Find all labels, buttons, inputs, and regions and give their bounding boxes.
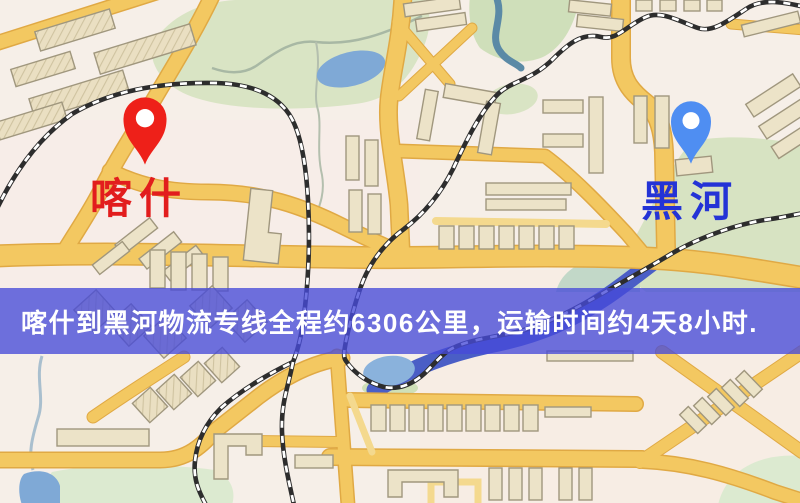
origin-city-label: 喀什	[90, 178, 188, 220]
route-info-text: 喀什到黑河物流专线全程约6306公里，运输时间约4天8小时.	[0, 303, 758, 340]
destination-city-label: 黑河	[641, 181, 739, 223]
map-image	[0, 0, 800, 503]
route-info-banner: 喀什到黑河物流专线全程约6306公里，运输时间约4天8小时.	[0, 288, 800, 354]
map-pin-icon	[666, 100, 716, 165]
map-pin-icon	[118, 96, 172, 166]
map-canvas: 喀什到黑河物流专线全程约6306公里，运输时间约4天8小时. 喀什 黑河	[0, 0, 800, 503]
destination-pin[interactable]	[666, 100, 716, 165]
origin-pin[interactable]	[118, 96, 172, 166]
